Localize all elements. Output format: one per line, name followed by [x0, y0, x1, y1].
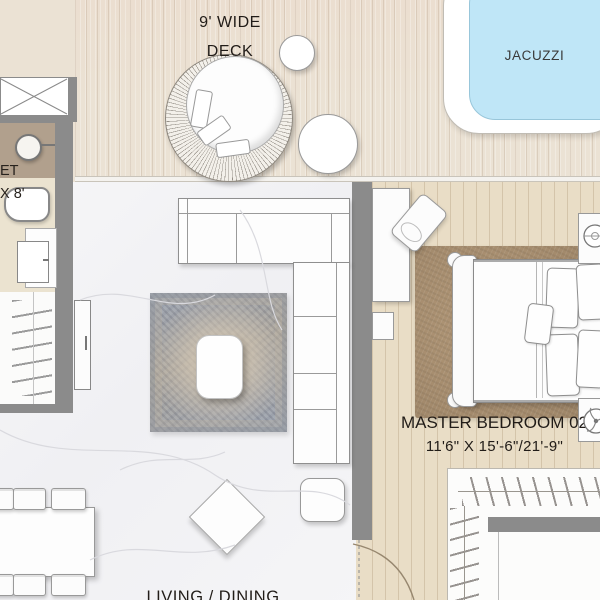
sink-icon — [15, 134, 42, 161]
wall-segment — [0, 404, 73, 413]
dining-chair — [51, 488, 86, 510]
sofa-seam — [294, 373, 336, 374]
toilet-label-line2: X 8' — [0, 183, 44, 206]
closet-shelf-line — [33, 292, 34, 404]
closet-rail — [464, 506, 465, 600]
master-bedroom-dimensions: 11'6" X 15'-6"/21'-9" — [392, 438, 597, 455]
hanger-rack-icon — [12, 300, 52, 396]
living-dining-label: LIVING / DINING — [128, 588, 298, 600]
sofa-sectional-vertical — [293, 262, 350, 464]
floor-plan: JACUZZI 9' WIDE DECK ET X 8' — [0, 0, 600, 600]
sofa-armrest — [179, 199, 188, 263]
toilet-label: ET X 8' — [0, 160, 44, 206]
jacuzzi-label: JACUZZI — [469, 48, 600, 63]
chair-seat-line — [397, 218, 426, 246]
closet-partition-line — [498, 532, 499, 600]
dining-chair — [0, 488, 14, 510]
bedroom-side-table — [372, 312, 394, 340]
side-ottoman — [300, 478, 345, 522]
sofa-backrest — [336, 263, 349, 463]
master-bedroom-label: MASTER BEDROOM 02 — [392, 413, 597, 433]
sofa-seam — [294, 409, 336, 410]
closet-rail — [458, 491, 600, 492]
deck-glass-wall — [75, 176, 600, 182]
vanity-cabinet — [17, 241, 49, 283]
cabinet-handle — [43, 259, 49, 261]
pillow — [524, 303, 555, 346]
faucet-icon — [40, 144, 55, 146]
sofa-seam — [331, 213, 332, 263]
wall-segment — [55, 115, 73, 412]
closet-wall — [488, 517, 600, 532]
pillow — [576, 329, 600, 388]
dining-table — [0, 507, 95, 577]
sofa-backrest — [179, 199, 349, 214]
nightstand — [578, 213, 600, 264]
shaft-box — [0, 77, 70, 117]
deck-side-table-large — [298, 114, 358, 174]
dining-chair — [0, 574, 14, 596]
coffee-table — [196, 335, 243, 399]
dining-chair — [51, 574, 86, 596]
sofa-seam — [294, 316, 336, 317]
bedroom-doorway-floor — [356, 540, 372, 600]
toilet-label-line1: ET — [0, 160, 44, 183]
wall-living-bedroom — [352, 182, 372, 540]
pillow — [545, 333, 580, 396]
closet-door — [74, 300, 91, 390]
door-handle — [85, 336, 87, 350]
sofa-sectional-horizontal — [178, 198, 350, 264]
deck-label-line1: 9' WIDE — [160, 8, 300, 37]
dining-chair — [13, 488, 46, 510]
dining-chair — [13, 574, 46, 596]
deck-label-line2: DECK — [160, 37, 300, 66]
deck-label: 9' WIDE DECK — [160, 8, 300, 66]
pillow — [576, 263, 600, 320]
sofa-seam — [236, 213, 237, 263]
